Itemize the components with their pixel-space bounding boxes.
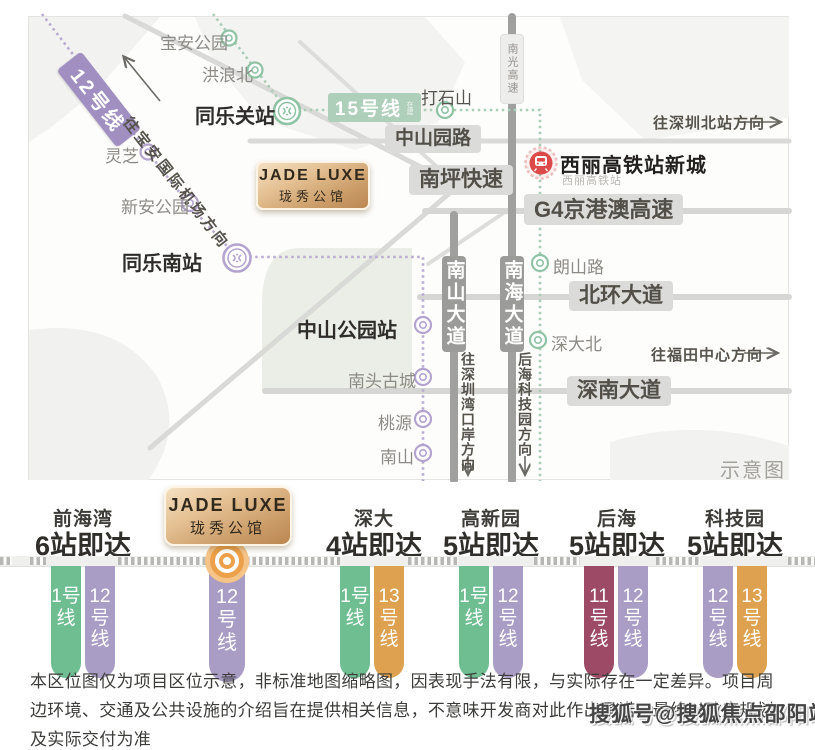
track-dash [0, 557, 12, 565]
station-label-tonglenan: 同乐南站 [122, 247, 202, 276]
line-pill-12: 12号线 [493, 566, 523, 678]
watermark: 搜狐号@搜狐焦点邵阳站 [589, 698, 815, 728]
station-label-baoan-park: 宝安公园 [160, 29, 228, 54]
line-pill-1: 1号线 [340, 566, 370, 678]
line-pill-12: 12号线 [85, 566, 115, 678]
schematic-note: 示意图 [720, 454, 786, 483]
station-label-nanshan: 南山 [380, 443, 414, 468]
road-label-nanping-expwy: 南坪快速 [409, 165, 513, 195]
track-dash [656, 557, 700, 565]
station-label-shendabei: 深大北 [551, 330, 602, 355]
track-dash [30, 557, 46, 565]
track-dash [534, 557, 580, 565]
station-label-tongleguan: 同乐关站 [195, 100, 275, 129]
station-label-nantou-ancient-city: 南头古城 [348, 367, 416, 392]
station-label-langshanlu: 朗山路 [553, 253, 604, 278]
track-dash [118, 557, 210, 565]
project-name-en: JADE LUXE [259, 167, 367, 185]
road-label-g4-expwy: G4京港澳高速 [524, 194, 683, 225]
line-pill-11: 11号线 [584, 566, 614, 678]
station-label-xinan-park: 新安公园 [121, 193, 189, 218]
station-label-lingzhi: 灵芝 [105, 142, 139, 167]
road-label-nanshan-blvd: 南山大道 [442, 256, 466, 352]
station-label-zhongshan-park: 中山公园站 [297, 314, 397, 343]
project-badge-map: JADE LUXE 珑秀公馆 [256, 161, 370, 210]
direction-shenzhen-north: 往深圳北站方向 [653, 112, 765, 133]
line15-under-construction-tag: 在建 [404, 101, 414, 115]
road-label-nanhai-blvd: 南海大道 [500, 256, 524, 352]
interchange-tongleguan [274, 98, 300, 124]
disclaimer-line-3: 及实际交付为准 [30, 725, 790, 750]
track-dash [788, 557, 815, 565]
hsr-station-sublabel: 西丽高铁站 [562, 172, 622, 188]
track-dash [408, 557, 458, 565]
hsr-station-icon [526, 148, 557, 179]
direction-houhai-tech-park: 后海科技园方向 [518, 352, 532, 457]
line-pill-12: 12号线 [703, 566, 733, 678]
line15-chip: 15号线 在建 [328, 93, 421, 122]
disclaimer-line-1: 本区位图仅为项目区位示意，非标准地图缩略图，因表现手法有限，与实际存在一定差异。… [30, 667, 790, 692]
line-pill-1: 1号线 [51, 566, 81, 678]
station-label-dashishan: 打石山 [421, 84, 472, 109]
road-label-zhongshanyuan: 中山园路 [385, 125, 481, 153]
line-pill-12: 12号线 [618, 566, 648, 678]
project-line-pill-12: 12号线 [209, 566, 245, 682]
project-name-cn: 珑秀公馆 [190, 517, 266, 538]
line-pill-1: 1号线 [459, 566, 489, 678]
line-pill-13: 13号线 [374, 566, 404, 678]
project-name-en: JADE LUXE [168, 495, 287, 516]
direction-shenzhen-bay-port: 往深圳湾口岸方向 [461, 352, 475, 472]
track-dash [246, 557, 340, 565]
project-name-cn: 珑秀公馆 [279, 186, 347, 205]
station-label-honglangbei: 洪浪北 [202, 61, 253, 86]
road-label-beihuan: 北环大道 [569, 281, 673, 311]
location-map-page: 12号线 往宝安国际机场方向 宝安公园 洪浪北 同乐关站 打石山 灵芝 新安公园… [0, 0, 815, 732]
line-pill-13: 13号线 [737, 566, 767, 678]
station-label-taoyuan: 桃源 [378, 409, 412, 434]
direction-futian-center: 往福田中心方向 [651, 344, 763, 365]
road-label-nanguang-expwy: 南光高速 [500, 34, 524, 104]
project-badge-transit: JADE LUXE 珑秀公馆 [164, 486, 292, 546]
road-label-shennan: 深南大道 [567, 376, 671, 406]
